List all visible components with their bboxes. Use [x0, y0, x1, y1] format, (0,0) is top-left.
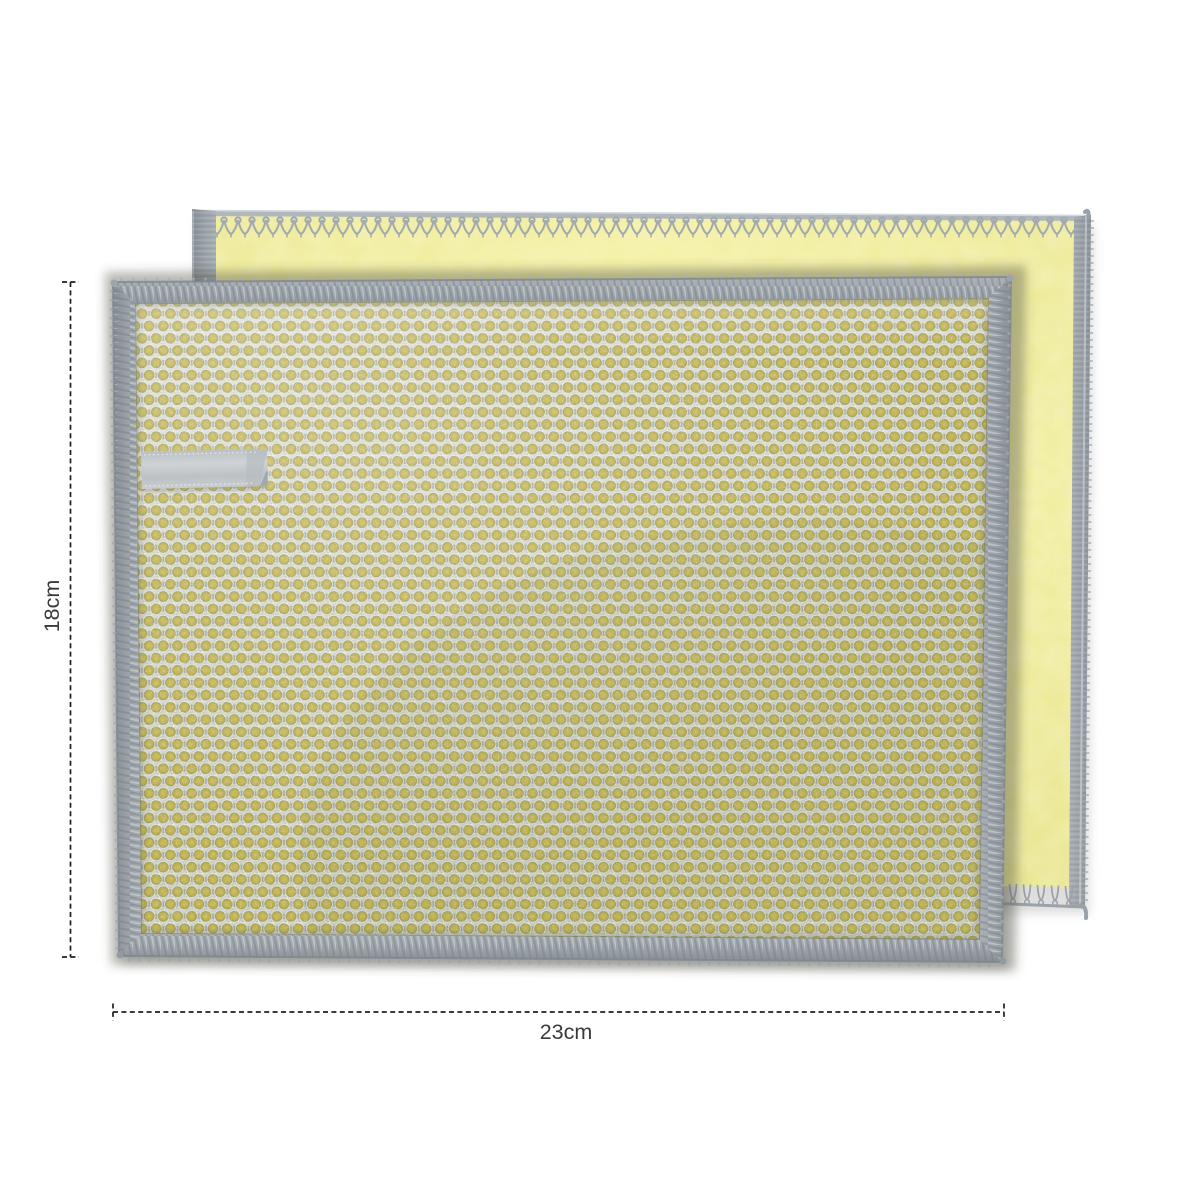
svg-text:18cm: 18cm — [40, 580, 64, 633]
svg-text:23cm: 23cm — [540, 1020, 593, 1044]
